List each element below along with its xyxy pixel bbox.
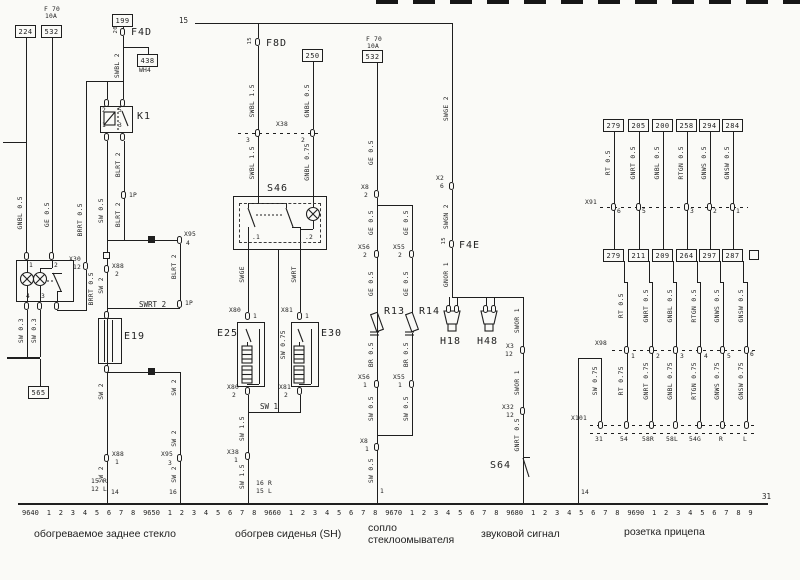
connector-pin	[697, 346, 702, 354]
connector-pin	[104, 311, 109, 319]
heater-resistor-icon	[371, 312, 384, 331]
connector-pin	[649, 346, 654, 354]
code-box: 297	[699, 249, 720, 262]
connector-pin	[446, 305, 451, 313]
terminal-label: 4	[186, 240, 190, 247]
code-box: 279	[603, 249, 624, 262]
terminal-label: 16 R	[256, 480, 272, 487]
code-box: 200	[652, 119, 673, 132]
connector-pin	[245, 312, 250, 320]
terminal-label: 5	[118, 107, 122, 114]
wire-color-label: SW 0.5	[368, 396, 375, 421]
terminal-label: 1	[398, 382, 402, 389]
wire-color-label: GNOR 1	[443, 262, 450, 287]
terminal-label: 2	[232, 392, 236, 399]
connector-pin	[104, 365, 109, 373]
wire-color-label: GNBL 0.5	[17, 196, 24, 230]
switch-blade-icon	[523, 458, 529, 477]
terminal-label: X55	[393, 244, 405, 251]
wire-color-label: SWRT	[291, 266, 298, 283]
terminal-label: X32	[502, 404, 514, 411]
wire-color-label: BRRT 0.5	[77, 203, 84, 237]
component-label-r13: R13	[384, 306, 405, 317]
connector-pin	[409, 380, 414, 388]
connector-pin	[624, 346, 629, 354]
wire-color-label: RTGN 0.5	[678, 146, 685, 180]
grid-ruler-number: 8	[736, 509, 740, 517]
terminal-label: 1	[102, 122, 106, 129]
grid-ruler-number: 2	[422, 509, 426, 517]
connector-pin	[720, 346, 725, 354]
grid-ruler-number: 8	[252, 509, 256, 517]
connector-pin	[83, 262, 88, 270]
connector-pin	[177, 454, 182, 462]
connector-pin	[611, 203, 616, 211]
terminal-label: 2	[54, 262, 58, 269]
wire-color-label: GE 0.5	[368, 210, 375, 235]
grid-ruler-number: 7	[361, 509, 365, 517]
wire-color-label: SW 0.75	[592, 366, 599, 395]
wire-color-label: GNSW 0.5	[738, 289, 745, 323]
component-label-e30: E30	[321, 328, 342, 339]
grid-ruler-number: 9640	[22, 509, 39, 517]
connector-pin	[730, 203, 735, 211]
component-label-e25: E25	[217, 328, 238, 339]
terminal-label: 1	[253, 313, 257, 320]
terminal-label: 6	[440, 183, 444, 190]
wiring-diagram-canvas: 2245321994382505325652792052002582942842…	[0, 0, 800, 580]
connector-pin	[483, 305, 488, 313]
grid-ruler-number: 8	[494, 509, 498, 517]
terminal-label: 12	[505, 351, 513, 358]
connector-pin	[409, 250, 414, 258]
connector-pin	[454, 305, 459, 313]
code-box: 565	[28, 386, 49, 399]
wire-color-label: SWOR 1	[514, 370, 521, 395]
code-box: 284	[722, 119, 743, 132]
terminal-label: X38	[227, 449, 239, 456]
connector-pin	[255, 129, 260, 137]
connector-pin	[449, 240, 454, 248]
wire-color-label: BR 0.5	[368, 342, 375, 367]
wire-color-label: SW 2	[98, 383, 105, 400]
connector-pin	[121, 191, 126, 199]
connector-pin	[310, 129, 315, 137]
terminal-label: 16	[169, 489, 177, 496]
connector-pin	[520, 407, 525, 415]
wire-color-label: BLRT 2	[115, 202, 122, 227]
terminal-label: 15 L	[256, 488, 272, 495]
component-label-r14: R14	[419, 306, 440, 317]
code-box: 438	[137, 54, 158, 67]
terminal-label: R	[719, 436, 723, 443]
code-box: 287	[722, 249, 743, 262]
connector-pin	[374, 190, 379, 198]
terminal-label: 3	[118, 122, 122, 129]
code-box: 209	[652, 249, 673, 262]
connector-pin	[104, 99, 109, 107]
terminal-label: 6	[750, 351, 754, 358]
terminal-label: X101	[571, 415, 587, 422]
connector-pin	[374, 250, 379, 258]
splice-point	[103, 252, 110, 259]
grid-ruler-number: 4	[446, 509, 450, 517]
connector-pin	[697, 421, 702, 429]
connector-pin	[120, 28, 125, 36]
terminal-label: .1	[252, 234, 260, 241]
terminal-label: 1	[380, 488, 384, 495]
switch-blade-icon	[248, 208, 255, 227]
wire-color-label: GE 0.5	[368, 140, 375, 165]
component-label-h18: H18	[440, 336, 461, 347]
grid-ruler-number: 5	[579, 509, 583, 517]
wire-color-label: SW 0.5	[98, 198, 105, 223]
terminal-label: 58R	[642, 436, 654, 443]
terminal-label: 12	[73, 264, 81, 271]
grid-ruler-number: 1	[289, 509, 293, 517]
connector-pin	[104, 454, 109, 462]
grid-ruler-number: 2	[301, 509, 305, 517]
relay-contact-icon	[122, 111, 128, 126]
grid-ruler-number: 3	[192, 509, 196, 517]
terminal-label: 1P	[129, 192, 137, 199]
connector-pin	[255, 38, 260, 46]
terminal-label: X95	[184, 231, 196, 238]
code-box: 264	[676, 249, 697, 262]
grid-ruler-number: 1	[47, 509, 51, 517]
terminal-label: X2	[436, 175, 444, 182]
grid-ruler-number: 1	[652, 509, 656, 517]
wire-color-label: SWBL 1.5	[249, 84, 256, 118]
grid-ruler-number: 8	[373, 509, 377, 517]
grid-ruler-number: 1	[531, 509, 535, 517]
section-label: звуковой сигнал	[481, 528, 560, 540]
terminal-label: X56	[358, 374, 370, 381]
connector-pin	[120, 133, 125, 141]
terminal-label: 15	[179, 16, 188, 25]
grid-ruler-number: 6	[228, 509, 232, 517]
connector-pin	[374, 380, 379, 388]
grid-ruler-number: 7	[240, 509, 244, 517]
code-box: 294	[699, 119, 720, 132]
connector-pin	[598, 421, 603, 429]
terminal-label: 31	[762, 492, 771, 501]
grid-ruler-number: 2	[180, 509, 184, 517]
terminal-label: .2	[305, 234, 313, 241]
wire-color-label: SWGN 2	[443, 204, 450, 229]
connector-pin	[245, 452, 250, 460]
terminal-label: 12 L	[91, 486, 107, 493]
grid-ruler-number: 9660	[264, 509, 281, 517]
connector-pin	[673, 421, 678, 429]
grid-ruler-number: 4	[325, 509, 329, 517]
horn-icon	[485, 324, 493, 331]
grid-ruler-number: 1	[410, 509, 414, 517]
terminal-label: L	[743, 436, 747, 443]
code-box: 224	[15, 25, 36, 38]
terminal-label: 2	[656, 353, 660, 360]
wire-color-label: GE 0.5	[403, 271, 410, 296]
wire-color-label: RT 0.5	[605, 150, 612, 175]
connector-pin	[720, 421, 725, 429]
terminal-label: 1P	[185, 300, 193, 307]
connector-pin	[649, 421, 654, 429]
component-label-h48: H48	[477, 336, 498, 347]
heater-resistor-icon	[406, 312, 419, 331]
wire-color-label: RT 0.75	[618, 366, 625, 395]
terminal-label: 2	[398, 252, 402, 259]
wire-color-label: GNBL 0.5	[654, 146, 661, 180]
connector-pin	[707, 203, 712, 211]
wire-color-label: SWGE	[239, 266, 246, 283]
code-box: 532	[362, 50, 383, 63]
grid-ruler-number: 9650	[143, 509, 160, 517]
grid-ruler-number: 7	[119, 509, 123, 517]
terminal-label: 54G	[689, 436, 701, 443]
code-box: 205	[628, 119, 649, 132]
terminal-label: 1	[365, 446, 369, 453]
wire-color-label: BLRT 2	[115, 152, 122, 177]
terminal-label: 1	[115, 459, 119, 466]
splice-point	[148, 368, 155, 375]
wire-color-label: GE 0.5	[368, 271, 375, 296]
grid-ruler-number: 2	[664, 509, 668, 517]
terminal-label: X3	[506, 343, 514, 350]
wire-color-label: SWGE 2	[443, 96, 450, 121]
connector-pin	[449, 182, 454, 190]
terminal-label: X38	[276, 121, 288, 128]
wire-color-label: SW 0.75	[280, 330, 287, 359]
terminal-label: X91	[585, 199, 597, 206]
wire-color-label: GNBL 0.75	[667, 362, 674, 400]
wire-color-label: GNRT 0.75	[643, 362, 650, 400]
connector-pin	[744, 421, 749, 429]
terminal-label: 54	[620, 436, 628, 443]
wire-color-label: GNWS 0.5	[714, 289, 721, 323]
grid-ruler-number: 5	[458, 509, 462, 517]
connector-pin	[104, 265, 109, 273]
terminal-label: 6	[617, 208, 621, 215]
terminal-label: 58L	[666, 436, 678, 443]
wire-color-label: SW 0.5	[403, 396, 410, 421]
section-label: обогрев сиденья (SH)	[235, 528, 341, 540]
grid-ruler-number: 9680	[506, 509, 523, 517]
terminal-label: X88	[112, 263, 124, 270]
wire-color-label: SW 1.5	[239, 416, 246, 441]
switch-blade-icon	[53, 273, 61, 291]
connector-pin	[297, 387, 302, 395]
terminal-label: X8	[360, 438, 368, 445]
terminal-label: 1	[736, 208, 740, 215]
grid-ruler-number: 6	[107, 509, 111, 517]
wire-color-label: GNSW 0.75	[738, 362, 745, 400]
wire-color-label: 15	[441, 237, 448, 245]
grid-ruler-number: 4	[204, 509, 208, 517]
horn-icon	[448, 324, 456, 331]
wire-color-label: SWOR 1	[514, 308, 521, 333]
grid-ruler-number: 5	[700, 509, 704, 517]
grid-ruler-number: 6	[712, 509, 716, 517]
wire-color-label: RTGN 0.75	[691, 362, 698, 400]
switch-blade-icon	[246, 329, 251, 342]
connector-pin	[177, 300, 182, 308]
grid-ruler-number: 9	[748, 509, 752, 517]
component-label-f8d: F8D	[266, 38, 287, 49]
wire-color-label: SW 1.5	[239, 464, 246, 489]
grid-ruler-number: 2	[59, 509, 63, 517]
terminal-label: F 70	[366, 36, 382, 43]
connector-pin	[520, 346, 525, 354]
grid-ruler-number: 1	[168, 509, 172, 517]
connector-pin	[636, 203, 641, 211]
grid-ruler-number: 4	[688, 509, 692, 517]
terminal-label: 1	[234, 457, 238, 464]
connector-pin	[177, 236, 182, 244]
terminal-label: 3	[41, 293, 45, 300]
terminal-label: X81	[281, 307, 293, 314]
terminal-label: 2	[284, 392, 288, 399]
wire-color-label: RT 0.5	[618, 293, 625, 318]
terminal-label: X88	[112, 451, 124, 458]
terminal-label: X8	[361, 184, 369, 191]
code-box: 250	[302, 49, 323, 62]
grid-ruler-number: 3	[676, 509, 680, 517]
grid-ruler-number: 3	[313, 509, 317, 517]
grid-ruler-number: 6	[349, 509, 353, 517]
connector-pin	[104, 133, 109, 141]
horn-icon	[444, 311, 460, 324]
connector-pin	[37, 302, 42, 310]
connector-pin	[491, 305, 496, 313]
code-box: 258	[676, 119, 697, 132]
terminal-label: 10A	[45, 13, 57, 20]
grid-ruler-number: 5	[216, 509, 220, 517]
connector-pin	[673, 346, 678, 354]
component-label-f4d: F4D	[131, 27, 152, 38]
wire-color-label: 15	[247, 37, 254, 45]
terminal-label: X30	[69, 256, 81, 263]
terminal-label: 5	[727, 353, 731, 360]
grid-ruler-number: 9670	[385, 509, 402, 517]
terminal-label: 3	[680, 353, 684, 360]
grid-ruler: 9640123456789650123456789660123456789670…	[22, 509, 753, 517]
grid-ruler-number: 3	[71, 509, 75, 517]
grid-ruler-number: 3	[434, 509, 438, 517]
wire-color-label: SW 0.3	[31, 318, 38, 343]
wire-color-label: GNBL 0.5	[667, 289, 674, 323]
terminal-label: 1	[305, 313, 309, 320]
terminal-label: 1	[29, 262, 33, 269]
terminal-label: 14	[111, 489, 119, 496]
terminal-label: WH4	[139, 67, 151, 74]
wire-color-label: GNRT 0.5	[514, 418, 521, 452]
wire-color-label: 20	[113, 26, 120, 34]
wire-color-label: SW 0.3	[18, 318, 25, 343]
grid-ruler-number: 2	[543, 509, 547, 517]
connector-pin	[684, 203, 689, 211]
wire-color-label: GNRT 0.5	[643, 289, 650, 323]
connector-pin	[54, 302, 59, 310]
terminal-label: 1	[363, 382, 367, 389]
terminal-label: 3	[690, 208, 694, 215]
grid-ruler-number: 6	[470, 509, 474, 517]
code-box: 532	[41, 25, 62, 38]
connector-pin	[297, 312, 302, 320]
wire-color-label: SW 2	[98, 277, 105, 294]
terminal-label: SWRT 2	[139, 300, 166, 309]
terminal-label: 2	[102, 107, 106, 114]
wire-color-label: SW 2	[171, 430, 178, 447]
terminal-label: X80	[227, 384, 239, 391]
terminal-label: 5	[642, 208, 646, 215]
wire-color-label: SW 2	[98, 466, 105, 483]
connector-pin	[24, 302, 29, 310]
grid-ruler-number: 9690	[627, 509, 644, 517]
wire-color-label: SWBL 1.5	[249, 146, 256, 180]
wire-color-label: BLRT 2	[171, 254, 178, 279]
connector-pin	[744, 346, 749, 354]
terminal-label: SW 1	[260, 402, 278, 411]
section-label: сопло стеклоомывателя	[368, 522, 454, 546]
terminal-label: 1	[631, 353, 635, 360]
grid-ruler-number: 4	[83, 509, 87, 517]
switch-blade-icon	[298, 329, 303, 342]
connector-pin	[120, 99, 125, 107]
symbol-glyph-layer	[0, 0, 800, 580]
terminal-label: X56	[358, 244, 370, 251]
connector-pin	[24, 252, 29, 260]
component-label-f4e: F4E	[459, 240, 480, 251]
terminal-label: 2	[364, 192, 368, 199]
grid-ruler-number: 4	[567, 509, 571, 517]
component-label-e19: E19	[124, 331, 145, 342]
terminal-label: X55	[393, 374, 405, 381]
terminal-label: 2	[713, 208, 717, 215]
wire-color-label: SWBL 2	[114, 53, 121, 78]
horn-icon	[481, 311, 497, 324]
terminal-label: 31	[595, 436, 603, 443]
code-box: 279	[603, 119, 624, 132]
wire-color-label: GNRT 0.5	[630, 146, 637, 180]
terminal-label: X95	[161, 451, 173, 458]
connector-pin	[624, 421, 629, 429]
terminal-label: 4	[704, 353, 708, 360]
wire-color-label: GE 0.5	[44, 202, 51, 227]
connector-pin	[49, 252, 54, 260]
wire-color-label: RTGN 0.5	[691, 289, 698, 323]
grid-ruler-number: 3	[555, 509, 559, 517]
grid-ruler-number: 5	[95, 509, 99, 517]
terminal-label: X80	[229, 307, 241, 314]
wire-color-label: GNBL 0.5	[304, 84, 311, 118]
wire-color-label: SW 2	[171, 466, 178, 483]
terminal-label: F 70	[44, 6, 60, 13]
connector-pin	[245, 387, 250, 395]
component-label-s64: S64	[490, 460, 511, 471]
wire-color-label: SW 2	[171, 379, 178, 396]
wire-color-label: GNWS 0.5	[701, 146, 708, 180]
terminal-label: 2	[363, 252, 367, 259]
wire-color-label: BRRT 0.5	[88, 272, 95, 306]
terminal-label: X81	[279, 384, 291, 391]
terminal-label: 14	[581, 489, 589, 496]
terminal-label: 10A	[367, 43, 379, 50]
wire-color-label: GE 0.5	[403, 210, 410, 235]
switch-blade-icon	[286, 208, 293, 227]
wire-color-label: GNSW 0.5	[724, 146, 731, 180]
terminal-label: 4	[26, 293, 30, 300]
terminal-label: 2	[115, 271, 119, 278]
